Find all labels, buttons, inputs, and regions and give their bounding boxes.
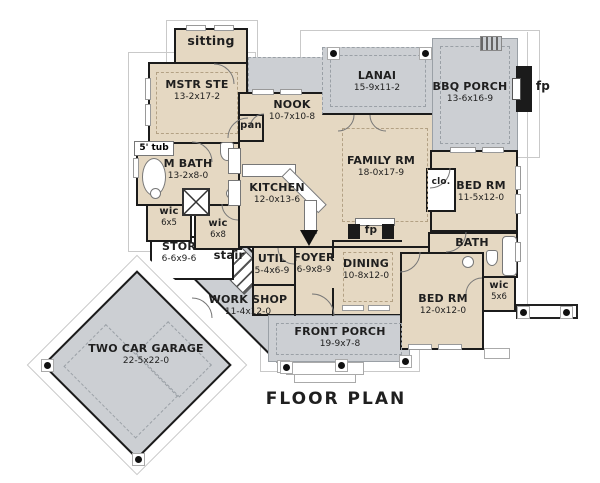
porch-column — [517, 306, 530, 319]
label-bbq-porch: BBQ PORCH13-6x16-9 — [418, 81, 522, 105]
label-fp-family: fp — [359, 224, 383, 236]
label-bed-rm-1: BED RM11-5x12-0 — [431, 180, 531, 204]
label-fp-bbq: fp — [531, 79, 555, 93]
label-lanai: LANAI15-9x11-2 — [327, 70, 427, 94]
porch-column — [132, 453, 145, 466]
porch-column — [41, 359, 54, 372]
label-util: UTIL5-4x6-9 — [246, 253, 298, 277]
label-two-car-garage: TWO CAR GARAGE22-5x22-0 — [75, 343, 217, 367]
porch-column — [335, 359, 348, 372]
label-bath: BATH — [428, 237, 516, 250]
page-title: FLOOR PLAN — [254, 389, 418, 409]
bbq-grill-hatch — [480, 36, 502, 51]
porch-column — [327, 47, 340, 60]
label-wic-6x5: wic6x5 — [146, 206, 192, 228]
label-wic-6x8: wic6x8 — [194, 218, 242, 240]
porch-column — [280, 361, 293, 374]
porch-column — [419, 47, 432, 60]
label-m-bath: M BATH13-2x8-0 — [138, 158, 238, 182]
floor-plan-canvas: 5' tub — [0, 0, 600, 483]
label-family-rm: FAMILY RM18-0x17-9 — [331, 155, 431, 179]
label-stair: stair — [205, 249, 253, 263]
label-sitting: sitting — [171, 34, 251, 49]
label-work-shop: WORK SHOP11-4x12-0 — [197, 294, 299, 318]
porch-column — [399, 355, 412, 368]
porch-column — [560, 306, 573, 319]
label-mstr-ste: MSTR STE13-2x17-2 — [147, 79, 247, 103]
label-nook: NOOK10-7x10-8 — [246, 99, 338, 123]
label-kitchen: KITCHEN12-0x13-6 — [227, 182, 327, 206]
label-front-porch: FRONT PORCH19-9x7-8 — [289, 326, 391, 350]
label-bed-rm-2: BED RM12-0x12-0 — [393, 293, 493, 317]
